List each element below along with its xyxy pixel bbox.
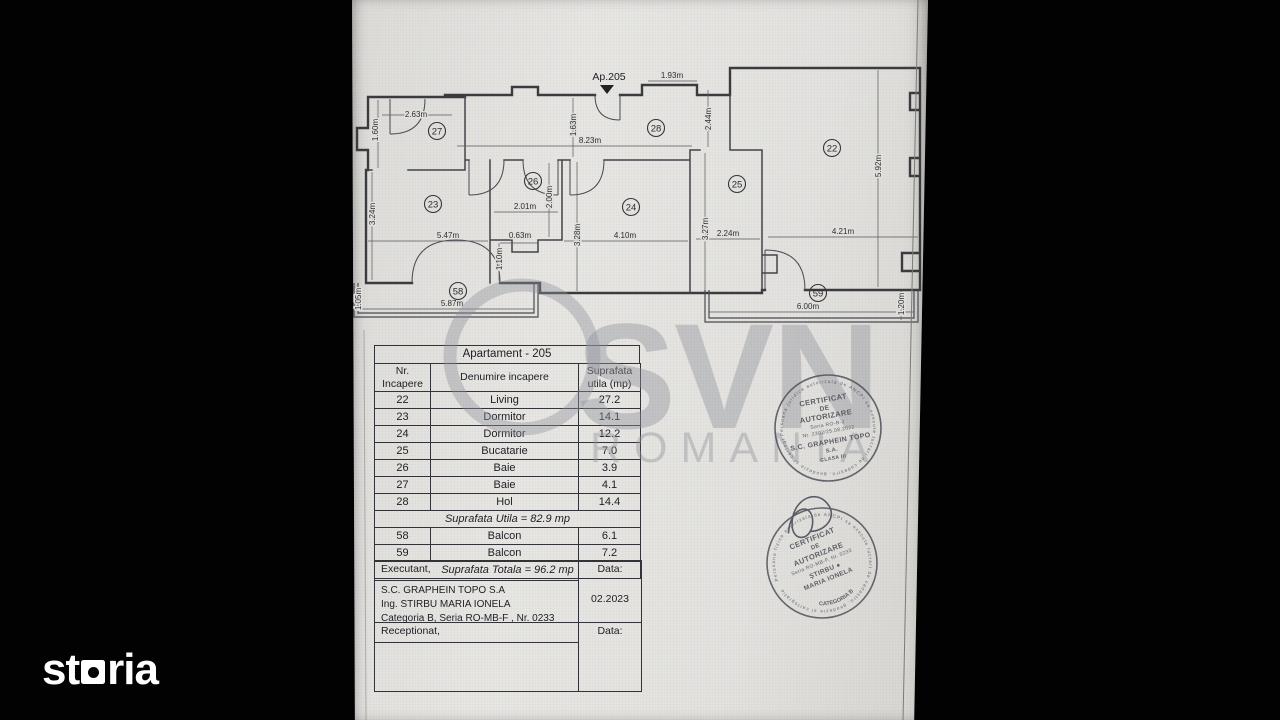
receptionat-label: Receptionat, (375, 623, 579, 643)
stamp-company-text: CERTIFICATDEAUTORIZARESeria RO-B-JNr. 23… (782, 388, 874, 468)
room-number: 25 (732, 179, 743, 190)
room-nr: 22 (375, 392, 431, 409)
dimension-label: 1.10m (495, 248, 504, 271)
room-nr: 27 (375, 477, 431, 494)
room-area: 12.2 (579, 426, 641, 443)
stamp-line: ŞTIRBU ● (809, 561, 842, 580)
svg-text:Persoana fizica autorizata de: Persoana fizica autorizata de ANCPI sa e… (756, 497, 889, 630)
photo-stage: Ap.205 2.63m1.60m1.93m2.44m1.63m8.23m2.0… (0, 0, 1280, 720)
date-label-1: Data: (597, 563, 622, 575)
stamp-line: S.A. (825, 447, 838, 455)
dimension-label: 1.20m (897, 293, 906, 316)
receptionat-empty-cell (375, 643, 579, 691)
room-number: 59 (813, 288, 824, 299)
balcony-nr: 58 (375, 528, 431, 545)
storia-logo-text-left: st (42, 645, 79, 694)
balcony-area: 7.2 (579, 545, 641, 562)
stamp-line: Seria RO-MB-F, Nr. 0233 (791, 548, 853, 578)
stamp-person-text: CERTIFICATDEAUTORIZARESeria RO-MB-F, Nr.… (780, 522, 860, 594)
dimension-label: 2.00m (545, 186, 554, 209)
room-area: 27.2 (579, 392, 641, 409)
room-nr: 23 (375, 409, 431, 426)
date-value: 02.2023 (591, 575, 629, 622)
stamp-line: AUTORIZARE (792, 540, 845, 568)
col-header-nr: Nr.Incapere (375, 364, 431, 392)
room-area: 14.4 (579, 494, 641, 511)
stamp-line: DE (810, 543, 821, 552)
room-name: Living (431, 392, 579, 409)
storia-logo-text-right: ria (107, 645, 158, 694)
balcony-area: 6.1 (579, 528, 641, 545)
date-label-2: Data: (597, 625, 622, 637)
dimension-label: 8.23m (579, 136, 602, 145)
dimension-label: 3.27m (701, 218, 710, 241)
room-number: 28 (651, 123, 662, 134)
stamp-line: MARIA IONELA (803, 566, 854, 592)
dimension-label: 3.28m (573, 224, 582, 247)
stamp-line: AUTORIZARE (799, 407, 853, 425)
signoff-block: Executant, Data: 02.2023 S.C. GRAPHEIN T… (374, 560, 642, 692)
storia-logo: stria (42, 648, 158, 692)
room-area: 4.1 (579, 477, 641, 494)
svg-text:Persoana juridica autorizata d: Persoana juridica autorizata de ANCPI sa… (771, 371, 885, 485)
table-title: Apartament - 205 (374, 345, 640, 363)
room-name: Bucatarie (431, 443, 579, 460)
room-number: 58 (453, 286, 464, 297)
dimension-label: 1.05m (354, 288, 363, 311)
dimension-label: 2.24m (717, 229, 740, 238)
stamp-line: CLASA III (820, 453, 847, 463)
room-nr: 25 (375, 443, 431, 460)
svg-text:CATEGORIA B: CATEGORIA B (817, 587, 857, 611)
stamp-line: DE (819, 404, 830, 413)
stamp-line: Seria RO-B-J (810, 419, 845, 431)
dimension-label: 5.47m (437, 231, 460, 240)
room-area: 14.1 (579, 409, 641, 426)
signature-squiggle (779, 491, 837, 541)
room-number: 26 (528, 176, 539, 187)
dimension-label: 1.63m (569, 114, 578, 137)
dimension-label: 1.93m (661, 71, 684, 80)
col-header-area: Suprafatautila (mp) (579, 364, 641, 392)
room-nr: 26 (375, 460, 431, 477)
room-number: 27 (432, 126, 443, 137)
stamp-line: Nr. 2302/25.08.2022 (802, 424, 855, 439)
col-header-name: Denumire incapere (431, 364, 579, 392)
room-name: Hol (431, 494, 579, 511)
executant-date-cell: Data: 02.2023 (579, 561, 641, 623)
dimension-label: 0.63m (509, 231, 532, 240)
balcony-name: Balcon (431, 528, 579, 545)
executant-label: Executant, (375, 561, 579, 581)
room-number-labels: 222324252627285859 (425, 120, 841, 302)
room-number: 23 (428, 199, 439, 210)
stamp-line: CERTIFICAT (799, 391, 848, 408)
entrance-arrow-icon (600, 85, 614, 94)
dimension-label: 5.87m (441, 299, 464, 308)
stamp-line: S.C. GRAPHEIN TOPO (790, 432, 871, 453)
room-nr: 24 (375, 426, 431, 443)
floor-plan: Ap.205 2.63m1.60m1.93m2.44m1.63m8.23m2.0… (352, 0, 928, 335)
stamp-line: CERTIFICAT (788, 525, 836, 551)
dimension-label: 6.00m (797, 302, 820, 311)
exterior-walls (357, 68, 920, 293)
dimension-label: 3.24m (368, 203, 377, 226)
balcony-name: Balcon (431, 545, 579, 562)
balcony-nr: 59 (375, 545, 431, 562)
dimension-label: 5.92m (874, 155, 883, 178)
dimension-lines (358, 70, 918, 320)
room-nr: 28 (375, 494, 431, 511)
room-name: Dormitor (431, 409, 579, 426)
dimension-label: 4.10m (614, 231, 637, 240)
apartment-entrance-label: Ap.205 (592, 71, 625, 83)
executant-details: S.C. GRAPHEIN TOPO S.A Ing. STIRBU MARIA… (375, 581, 579, 623)
room-name: Dormitor (431, 426, 579, 443)
dimension-label: 2.01m (514, 202, 537, 211)
stamp-company: Persoana juridica autorizata de ANCPI sa… (767, 367, 890, 490)
room-name: Baie (431, 477, 579, 494)
dimension-label: 1.60m (371, 119, 380, 142)
suprafata-utila-row: Suprafata Utila = 82.9 mp (375, 511, 641, 528)
dimension-label: 4.21m (832, 227, 855, 236)
area-table: Apartament - 205 Nr.Incapere Denumire in… (374, 345, 640, 579)
room-number: 22 (827, 143, 838, 154)
room-name: Baie (431, 460, 579, 477)
room-table-body: 22Living27.223Dormitor14.124Dormitor12.2… (375, 392, 641, 579)
dimension-labels: 2.63m1.60m1.93m2.44m1.63m8.23m2.01m2.00m… (354, 71, 906, 315)
document-paper: Ap.205 2.63m1.60m1.93m2.44m1.63m8.23m2.0… (352, 0, 928, 720)
room-area: 7.0 (579, 443, 641, 460)
receptionat-date-cell: Data: (579, 623, 641, 691)
storia-square-o-icon (81, 660, 105, 684)
door-arcs (390, 95, 805, 290)
dimension-label: 2.44m (704, 108, 713, 131)
sheet-frame-left (364, 330, 366, 720)
dimension-label: 2.63m (405, 110, 428, 119)
room-area: 3.9 (579, 460, 641, 477)
stamp-person: Persoana fizica autorizata de ANCPI sa e… (746, 481, 893, 634)
room-number: 24 (626, 202, 637, 213)
